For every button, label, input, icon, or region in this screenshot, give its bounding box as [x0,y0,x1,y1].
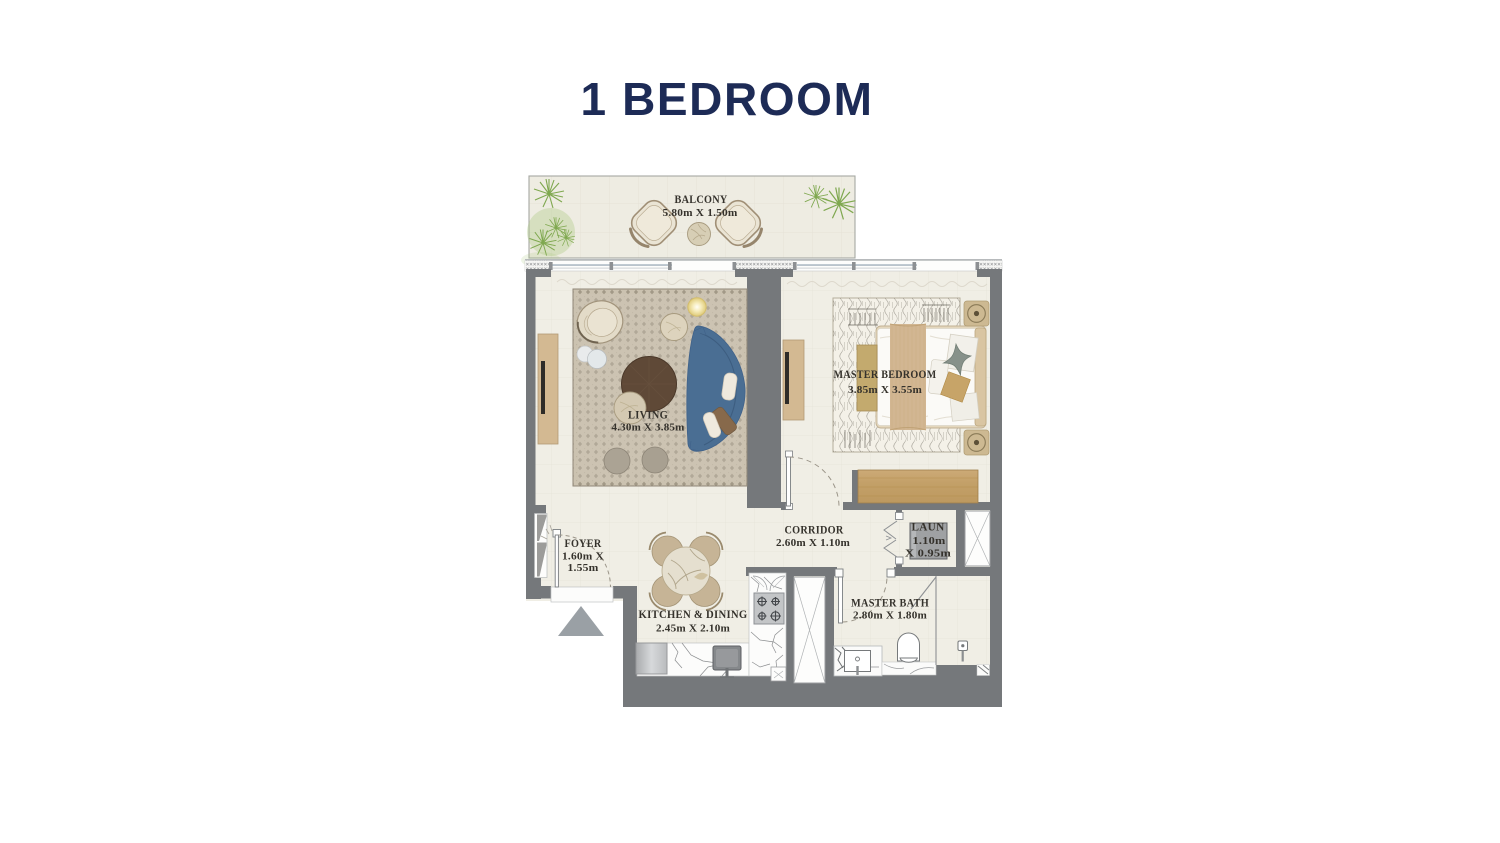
svg-text:FOYER: FOYER [565,538,602,550]
svg-text:2.60m X 1.10m: 2.60m X 1.10m [776,537,850,549]
svg-text:CORRIDOR: CORRIDOR [785,525,844,537]
svg-text:KITCHEN & DINING: KITCHEN & DINING [639,609,748,621]
svg-text:1.10m: 1.10m [913,535,946,547]
svg-text:X 0.95m: X 0.95m [905,548,951,560]
svg-text:2.80m X 1.80m: 2.80m X 1.80m [853,610,927,622]
svg-text:1.60m X: 1.60m X [562,551,604,563]
svg-text:2.45m X 2.10m: 2.45m X 2.10m [656,623,730,635]
svg-text:1 BEDROOM: 1 BEDROOM [581,73,874,125]
svg-text:LIVING: LIVING [628,410,668,422]
svg-text:MASTER BEDROOM: MASTER BEDROOM [834,369,937,381]
svg-text:5.80m X 1.50m: 5.80m X 1.50m [663,207,738,219]
svg-text:BALCONY: BALCONY [675,194,728,206]
svg-text:1.55m: 1.55m [568,562,599,574]
svg-text:3.85m X 3.55m: 3.85m X 3.55m [848,384,922,396]
svg-text:MASTER BATH: MASTER BATH [851,598,929,610]
svg-text:LAUN: LAUN [912,522,945,534]
svg-text:4.30m X 3.85m: 4.30m X 3.85m [612,422,685,434]
